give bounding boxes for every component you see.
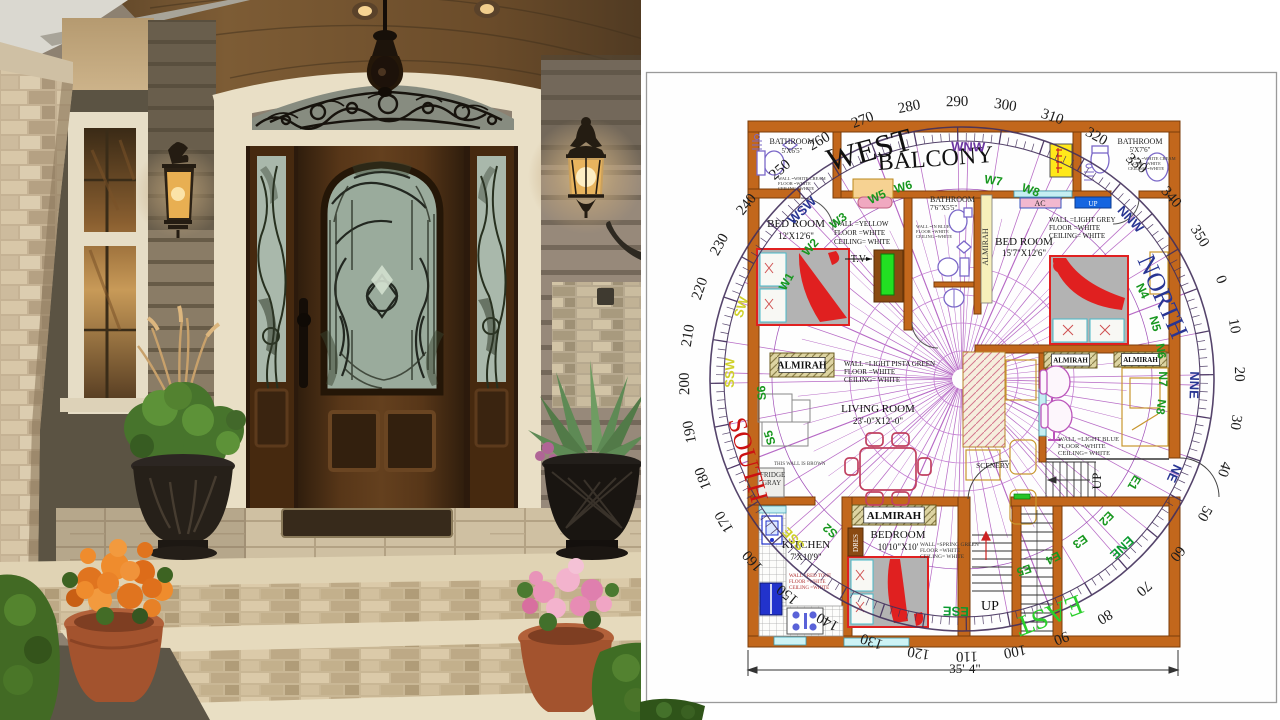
svg-text:7'X10'9": 7'X10'9" xyxy=(790,552,822,562)
svg-text:290: 290 xyxy=(946,94,969,110)
svg-text:CEILING= WHITE: CEILING= WHITE xyxy=(1049,232,1105,240)
svg-text:BEDROOM: BEDROOM xyxy=(870,529,925,541)
svg-text:ALMIRAH: ALMIRAH xyxy=(1053,357,1088,365)
svg-text:CEILING= WHITE: CEILING= WHITE xyxy=(844,376,900,384)
svg-text:7'6"X5'5": 7'6"X5'5" xyxy=(930,204,957,212)
svg-text:WALL =LIGHT BLUE: WALL =LIGHT BLUE xyxy=(1058,436,1119,443)
svg-text:ALMIRAH: ALMIRAH xyxy=(981,228,990,266)
svg-text:W7: W7 xyxy=(983,172,1003,189)
svg-text:CEILING= WHITE: CEILING= WHITE xyxy=(1058,450,1110,457)
svg-text:N6: N6 xyxy=(1153,342,1169,359)
svg-text:ALMIRAH: ALMIRAH xyxy=(1123,356,1158,364)
svg-text:20: 20 xyxy=(1231,366,1247,381)
svg-text:BATHROOM: BATHROOM xyxy=(1118,137,1163,146)
svg-text:CEILING= WHITE: CEILING= WHITE xyxy=(834,238,890,246)
svg-text:S6: S6 xyxy=(754,385,769,401)
svg-text:WALL =LIGHT PISTA GREEN: WALL =LIGHT PISTA GREEN xyxy=(844,360,935,368)
svg-text:10'10"X10': 10'10"X10' xyxy=(878,542,919,552)
svg-text:200: 200 xyxy=(677,372,693,395)
svg-text:10: 10 xyxy=(1225,317,1244,335)
svg-text:LIVING ROOM: LIVING ROOM xyxy=(841,403,915,415)
svg-text:SSW: SSW xyxy=(722,357,738,388)
svg-text:BATHROOM: BATHROOM xyxy=(930,195,975,204)
svg-text:FLOOR =WHITE: FLOOR =WHITE xyxy=(1058,443,1106,450)
svg-text:N8: N8 xyxy=(1153,398,1169,415)
svg-text:FLOOR =WHITE: FLOOR =WHITE xyxy=(1049,224,1100,232)
svg-text:WALL =LIGHT GREY: WALL =LIGHT GREY xyxy=(1049,216,1116,224)
svg-text:15'7"X12'6": 15'7"X12'6" xyxy=(1002,248,1046,258)
svg-text:CEILING =WHITE: CEILING =WHITE xyxy=(916,234,952,239)
svg-text:ESE: ESE xyxy=(942,604,969,620)
svg-text:5'X6'5": 5'X6'5" xyxy=(782,147,803,155)
svg-text:FLOOR =WHITE: FLOOR =WHITE xyxy=(789,580,826,585)
svg-text:ALMIRAH: ALMIRAH xyxy=(777,361,827,372)
svg-text:DRES: DRES xyxy=(852,534,860,552)
svg-text:SCENERY: SCENERY xyxy=(976,461,1010,470)
svg-text:UP: UP xyxy=(1089,200,1098,208)
svg-text:ALMIRAH: ALMIRAH xyxy=(867,510,922,522)
svg-text:30: 30 xyxy=(1226,414,1244,431)
svg-text:CEILING= WHITE: CEILING= WHITE xyxy=(920,554,965,560)
svg-text:FLOOR =WHITE: FLOOR =WHITE xyxy=(834,229,885,237)
svg-text:23'-0"X12'-0": 23'-0"X12'-0" xyxy=(853,416,903,426)
svg-text:110: 110 xyxy=(956,648,978,664)
svg-text:NNE: NNE xyxy=(1187,371,1203,399)
svg-text:UP: UP xyxy=(981,599,999,614)
svg-text:FLOOR =WHITE: FLOOR =WHITE xyxy=(844,368,895,376)
svg-text:AC: AC xyxy=(1034,199,1045,208)
svg-text:UP: UP xyxy=(1089,473,1104,490)
svg-text:THIS WALL IS BROWN: THIS WALL IS BROWN xyxy=(774,462,826,467)
svg-text:BED ROOM: BED ROOM xyxy=(995,236,1053,248)
svg-text:N7: N7 xyxy=(1156,371,1170,387)
svg-text:WNW: WNW xyxy=(951,139,986,155)
